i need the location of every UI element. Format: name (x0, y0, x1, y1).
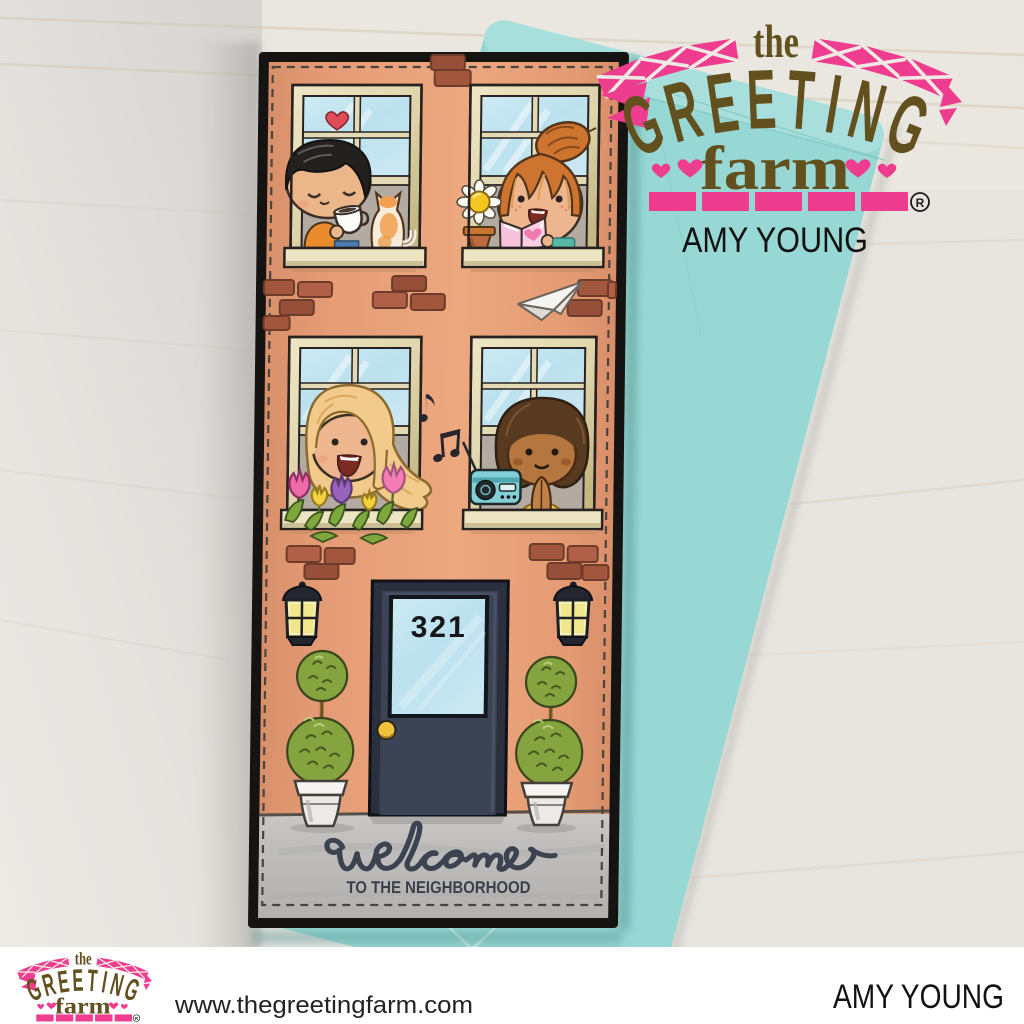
svg-text:321: 321 (411, 611, 467, 644)
svg-text:TO THE NEIGHBORHOOD: TO THE NEIGHBORHOOD (346, 878, 530, 897)
svg-text:www.thegreetingfarm.com: www.thegreetingfarm.com (174, 992, 473, 1019)
svg-text:E: E (745, 52, 778, 147)
svg-text:AMY YOUNG: AMY YOUNG (833, 978, 1004, 1016)
svg-text:R: R (916, 196, 925, 210)
svg-text:AMY YOUNG: AMY YOUNG (682, 221, 868, 260)
